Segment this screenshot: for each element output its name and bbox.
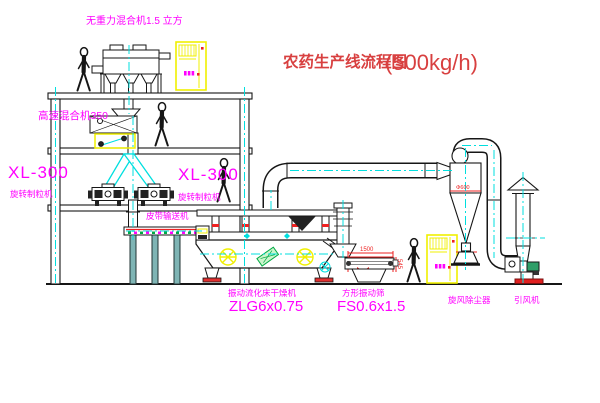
person-figure-roof [78,48,90,91]
label-granulator-left-model: XL-300 [8,163,69,182]
label-dryer-model: ZLG6x0.75 [229,298,303,315]
control-cabinet-top [176,42,206,90]
fluid-bed-dryer [196,210,339,282]
granulator-left [88,184,128,206]
person-figure-ground [408,239,420,282]
y-chute [104,154,158,188]
diagram-title-capacity: (500kg/h) [385,50,478,75]
granulator-right [134,184,174,206]
dim-cyclone: Φ600 [456,185,470,191]
label-fan: 引风机 [514,295,540,305]
process-flow-diagram: 无重力混合机1.5 立方 高速混合机350 XL-300 旋转制粒机 XL-30… [0,0,600,403]
dim-sieve-height: 545 [396,259,402,270]
pesticide-production-line-drawing: 无重力混合机1.5 立方 高速混合机350 XL-300 旋转制粒机 XL-30… [0,0,600,403]
label-cyclone: 旋风除尘器 [448,295,491,305]
label-belt-conveyor: 皮带输送机 [146,211,189,221]
label-dryer-name: 振动流化床干燥机 [228,288,297,298]
gravity-mixer [92,45,170,93]
label-granulator-right-name: 旋转制粒机 [178,192,221,202]
vibrating-sieve [345,251,398,282]
label-granulator-left-name: 旋转制粒机 [10,189,53,199]
exhaust-duct [262,163,454,209]
label-granulator-right-model: XL-300 [178,165,239,184]
label-high-speed-mixer: 高速混合机350 [38,109,108,122]
person-figure-second-floor [156,103,168,146]
label-sieve-model: FS0.6x1.5 [337,298,405,315]
control-cabinet-ground [427,235,457,283]
dim-sieve-length: 1500 [360,247,374,253]
label-gravity-mixer: 无重力混合机1.5 立方 [86,14,183,27]
label-sieve-name: 方形振动筛 [342,288,385,298]
